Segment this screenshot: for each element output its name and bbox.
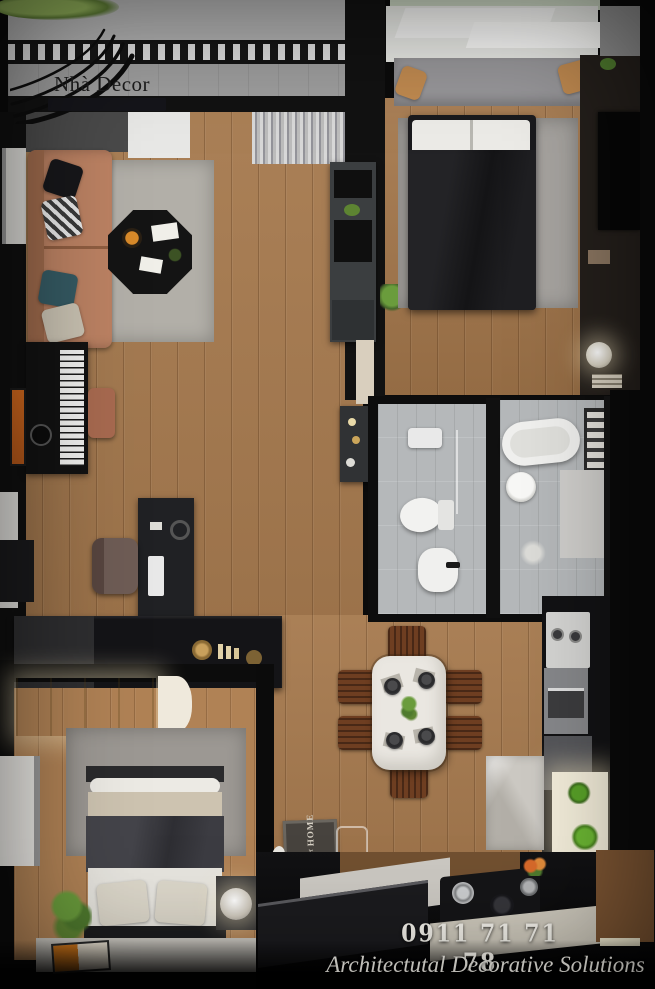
washer-dryer [546,612,590,668]
hall-runner [356,340,374,404]
dining-chair-left-2 [338,716,376,750]
wardrobe-plant [600,58,616,70]
perspective-wood-cabinet [596,850,654,942]
kitchen-marble-rug [486,756,544,850]
desk-notepad [150,522,162,530]
bedroom2-pillow-left [96,880,150,927]
cooking-pot-1 [452,882,474,904]
bedroom2-window [0,756,40,866]
living-window [2,148,26,244]
bedroom2-sphere-lamp [220,888,252,920]
kitchen-plant-1 [566,782,592,804]
sideboard-candle-1 [218,644,223,659]
master-tv [598,112,640,230]
wall-artwork-orange [10,388,26,466]
bathroom2-partition [560,470,604,558]
sofa-cushion-seam [44,246,112,249]
bathroom1-wall-sink [408,428,442,448]
wardrobe-decor-box [588,250,610,264]
piano-bench [88,388,115,438]
brand-tagline-bar [48,98,166,111]
console-vase [346,458,355,467]
wardrobe-lamp [586,342,612,368]
studio-stool [30,424,52,446]
tv-shelf-plant [344,204,360,216]
bedroom2-plant [50,888,92,940]
wardrobe-books [592,374,622,388]
kitchen-plant-2 [570,824,600,850]
apartment-floorplan-render: HOME sweet HOME [0,0,655,989]
sideboard-candle-3 [234,648,239,659]
plate-4 [418,728,435,745]
cooking-pot-3 [520,878,538,896]
dining-centerpiece-plant [400,696,418,722]
bedroom2-pillow-right [154,880,207,926]
dining-chair-right-2 [444,716,482,750]
fruit-bowl [122,228,142,248]
desk [138,498,194,622]
tv-shelf-cubby-2 [334,220,372,262]
bathroom2-drain-light [520,540,546,566]
plate-1 [384,678,401,695]
bathroom1-faucet [446,562,460,568]
master-bed-duvet [408,150,536,310]
bedroom2-duvet [86,816,224,872]
coffee-table-plant [168,246,182,264]
bathroom-divider-wall [486,398,500,618]
tv-shelf-cubby-1 [334,170,372,198]
piano-keys [60,350,84,466]
wall-shelf [0,540,34,602]
washer-door-2 [569,630,582,643]
sideboard-candle-2 [226,646,231,659]
footer-tagline: Architectutal Decorative Solutions [316,952,655,978]
desk-laptop [148,556,164,596]
tv-lower-cabinet [332,300,374,340]
bathroom1-toilet-tank [438,500,454,530]
plate-2 [418,672,435,689]
console-candle-2 [352,436,360,444]
plate-3 [386,732,403,749]
master-pillow-seam [470,120,473,154]
kitchen-flowers [520,856,550,876]
dining-chair-left-1 [338,670,376,704]
bedroom2-cabinet-curved [158,676,192,732]
brand-name: Nhà Decor [54,72,150,97]
cooking-pot-2 [490,894,514,916]
sideboard-gold-disc [192,640,212,660]
bathroom2-round-sink [506,472,536,502]
bathroom1-basin [418,548,458,592]
right-edge-wall [640,0,655,420]
doormat-word-bottom: HOME [304,814,315,847]
office-chair-back [92,538,104,594]
dining-chair-right-1 [444,670,482,704]
washer-door-1 [551,628,564,641]
bathroom1-glass-partition [456,430,458,514]
oven-door [548,688,584,718]
desk-lamp [170,520,190,540]
console-candle-1 [348,418,356,426]
